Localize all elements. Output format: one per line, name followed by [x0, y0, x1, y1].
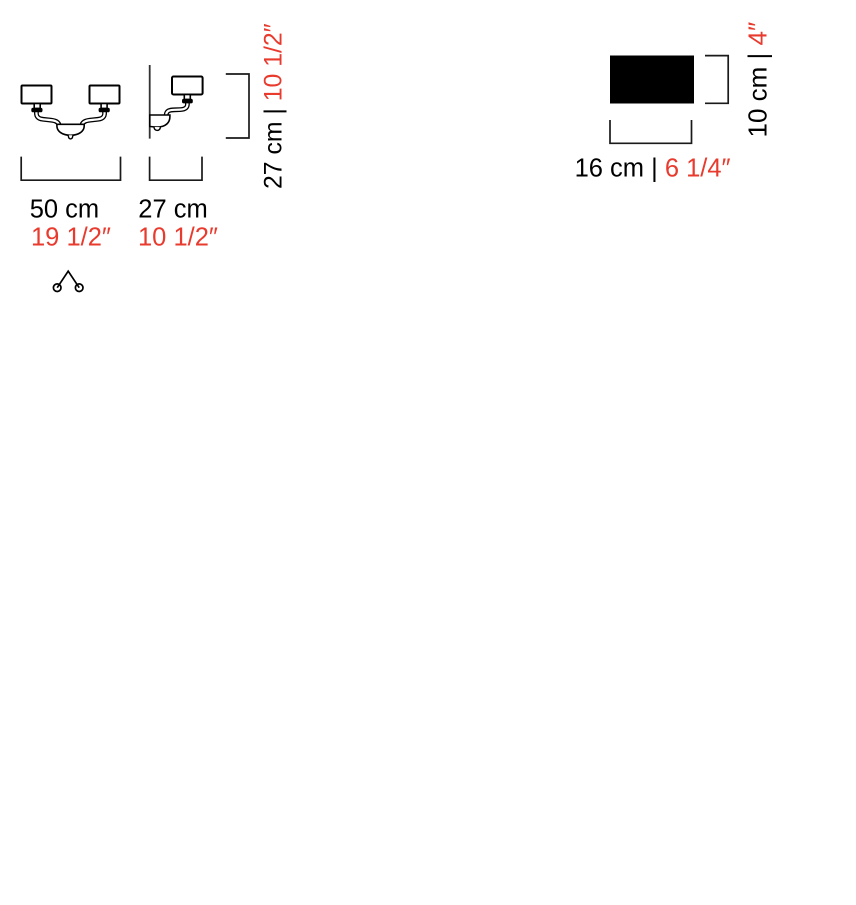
svg-text:10 cm | 4″: 10 cm | 4″	[743, 22, 773, 138]
svg-text:27 cm: 27 cm	[138, 195, 207, 223]
svg-text:50 cm: 50 cm	[30, 195, 99, 223]
svg-text:16 cm | 6 1/4″: 16 cm | 6 1/4″	[575, 155, 731, 183]
svg-text:19 1/2″: 19 1/2″	[31, 224, 111, 252]
svg-text:10 1/2″: 10 1/2″	[138, 224, 218, 252]
svg-text:27 cm | 10 1/2″: 27 cm | 10 1/2″	[261, 23, 288, 189]
